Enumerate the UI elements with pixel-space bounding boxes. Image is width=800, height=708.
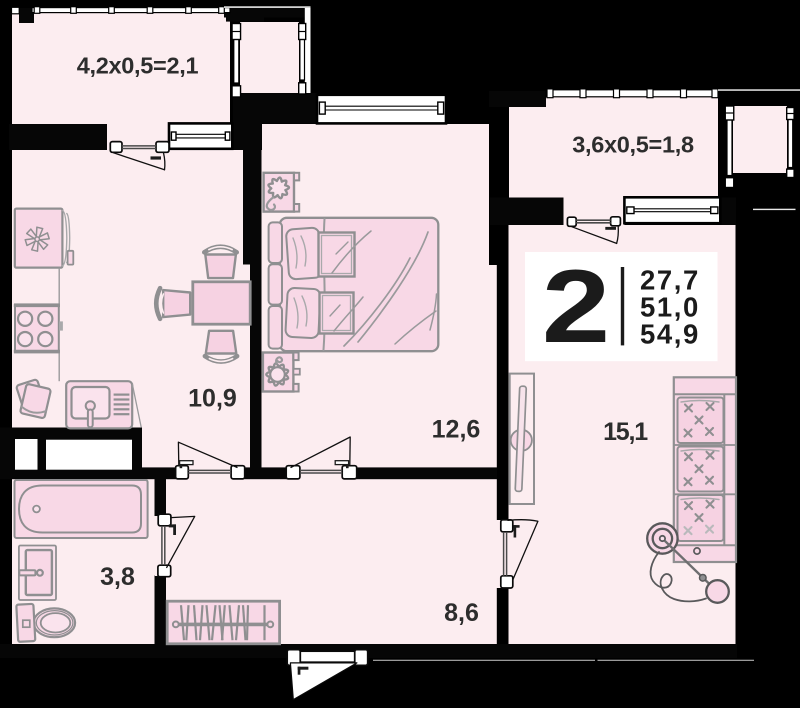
svg-text:3,8: 3,8: [100, 563, 135, 591]
svg-text:4,2x0,5=2,1: 4,2x0,5=2,1: [77, 53, 199, 79]
svg-text:10,9: 10,9: [188, 385, 237, 413]
svg-text:15,1: 15,1: [603, 418, 648, 446]
svg-text:2: 2: [542, 249, 610, 365]
svg-text:3,6x0,5=1,8: 3,6x0,5=1,8: [572, 132, 694, 158]
svg-text:54,9: 54,9: [640, 319, 700, 350]
svg-text:8,6: 8,6: [444, 599, 479, 627]
svg-text:12,6: 12,6: [432, 416, 481, 444]
